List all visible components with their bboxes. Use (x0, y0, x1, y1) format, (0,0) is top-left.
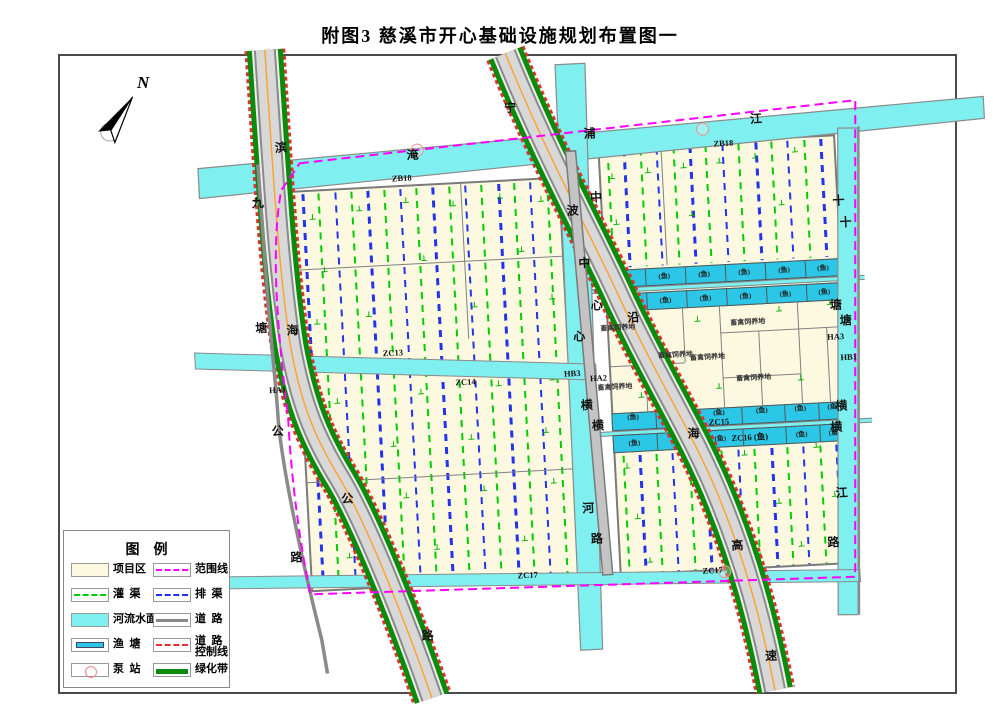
binhai-road-label-char: 公 (341, 489, 354, 507)
shitang-river-label-char: 横 (835, 396, 848, 414)
jiutang-road-label-char: 公 (271, 422, 284, 440)
legend-item-label: 渔 塘 (113, 639, 141, 650)
zone-code-label: HB1 (840, 351, 857, 362)
zone-code-label: ZB18 (392, 172, 412, 183)
legend-line-sample (156, 644, 188, 646)
zone-code-label: ZB18 (713, 138, 733, 149)
tanghern-road-label-char: 横 (830, 418, 843, 436)
zhongxin-river-label-char: 河 (582, 499, 595, 517)
legend-pump-icon (85, 666, 97, 678)
livestock-area-label: 畜禽饲养地 (736, 372, 771, 384)
shitang-river-label-char: 塘 (839, 311, 852, 329)
tanghern-road-label-char: 塘 (829, 296, 842, 314)
shitang-river-label-char: 十 (839, 213, 852, 231)
legend-item-label: 范围线 (195, 564, 228, 575)
yanpu-river-label-char: 浦 (583, 124, 596, 142)
north-label: N (137, 73, 149, 93)
yanhai-expressway-label-char: 速 (765, 646, 778, 664)
shitang-river-label-char: 江 (835, 484, 848, 502)
pump-station-icon (696, 122, 710, 136)
yanhai-expressway-label-char: 海 (687, 424, 700, 442)
yanhai-expressway-label-char: 沿 (627, 308, 640, 326)
yanhai-expressway-label-char: 波 (566, 201, 579, 219)
legend-box: 图 例 项目区范围线灌 渠排 渠河流水面道 路渔 塘道 路控制线泵 站绿化带 (63, 530, 230, 688)
zhongxin-river-label-char: 心 (573, 327, 586, 345)
zone-code-label: HA3 (827, 331, 845, 342)
binhai-road-label-char: 路 (421, 626, 434, 644)
zhongxin-road-label-char: 心 (590, 296, 603, 314)
tanghern-road-label-char: 十 (832, 191, 845, 209)
zone-code-label: ZC14 (455, 376, 476, 387)
legend-line-sample (156, 669, 188, 674)
legend-pond-fill (76, 642, 104, 648)
legend-line-sample (156, 594, 188, 596)
binhai-road-label-char: 滨 (274, 138, 287, 156)
zone-code-label: ZC15 (708, 416, 729, 427)
yanhai-expressway-label-char: 高 (731, 536, 744, 554)
zone-code-label: ZC16 (鱼) (731, 430, 768, 444)
legend-swatch-line-green-thick (153, 663, 191, 677)
legend-item-label: 灌 渠 (113, 589, 141, 600)
livestock-area-label: 畜禽饲养地 (658, 349, 693, 361)
legend-swatch-line-blue-dash (153, 588, 191, 602)
legend-swatch-line-red-dash (153, 638, 191, 652)
legend-swatch-pump (71, 663, 109, 677)
north-arrow: N (85, 65, 175, 175)
jiutang-road-label-char: 九 (251, 194, 264, 212)
zhongxin-road-label-char: 路 (590, 529, 603, 547)
legend-item-label: 河流水面 (113, 614, 157, 625)
legend-swatch-area-river (71, 613, 109, 627)
zone-code-label: HB3 (564, 368, 581, 379)
legend-swatch-line-green-dash (71, 588, 109, 602)
zhongxin-road-label-char: 横 (591, 416, 604, 434)
legend-item-label: 排 渠 (195, 589, 223, 600)
plan-map-page: 附图3 慈溪市开心基础设施规划布置图一 (鱼)(鱼)(鱼)(鱼)(鱼)(鱼)(鱼… (0, 0, 1000, 725)
legend-item-label: 道 路控制线 (195, 636, 228, 658)
legend-line-sample (74, 594, 106, 596)
north-arrow-icon (85, 65, 175, 175)
zhongxin-river-label-char: 中 (578, 254, 591, 272)
legend-swatch-area-parcel (71, 563, 109, 577)
legend-item-label: 绿化带 (195, 664, 228, 675)
jiutang-road-label-char: 路 (290, 548, 303, 566)
livestock-area-label: 畜禽饲养地 (690, 351, 725, 363)
tanghern-road-label-char: 路 (827, 533, 840, 551)
zone-code-label: ZC17 (517, 569, 538, 580)
legend-swatch-line-magenta-dash (153, 563, 191, 577)
legend-line-sample (156, 569, 188, 571)
yanpu-river-label-char: 淹 (406, 146, 419, 164)
zhongxin-road-label-char: 中 (590, 188, 603, 206)
zone-code-label: HA1 (269, 384, 287, 395)
livestock-area-label: 畜禽饲养地 (730, 316, 765, 328)
livestock-area-label: 畜禽饲养地 (597, 381, 632, 393)
zone-code-label: ZC13 (382, 347, 403, 358)
legend-item-label: 项目区 (113, 564, 146, 575)
zone-code-label: HA2 (590, 373, 608, 384)
legend-item-label: 道 路 (195, 614, 223, 625)
legend-item-label: 泵 站 (113, 664, 141, 675)
zhongxin-river-label-char: 横 (580, 396, 593, 414)
yanhai-expressway-label-char: 宁 (504, 98, 517, 116)
jiutang-road-label-char: 塘 (255, 319, 268, 337)
legend-swatch-area-pond (71, 638, 109, 652)
legend-title: 图 例 (64, 539, 229, 559)
binhai-road-label-char: 海 (286, 321, 299, 339)
zone-code-label: ZC17 (702, 565, 723, 576)
legend-line-sample (156, 619, 188, 622)
yanpu-river-label-char: 江 (750, 110, 763, 128)
legend-swatch-line-gray (153, 613, 191, 627)
